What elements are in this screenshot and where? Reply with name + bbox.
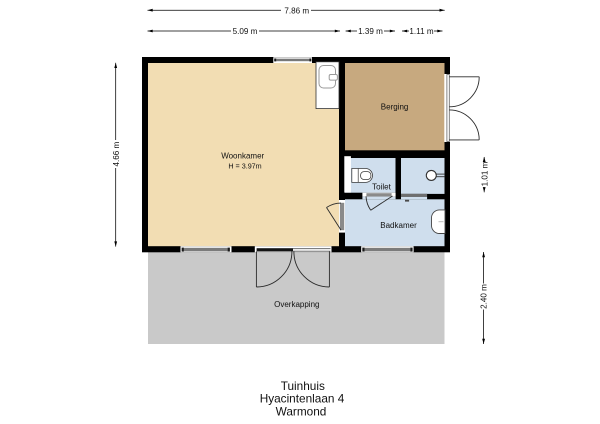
svg-text:Warmond: Warmond: [276, 404, 327, 418]
svg-text:Woonkamer: Woonkamer: [221, 151, 264, 160]
svg-text:Badkamer: Badkamer: [380, 221, 417, 230]
svg-text:1.11 m: 1.11 m: [409, 27, 433, 36]
svg-text:Toilet: Toilet: [372, 182, 391, 191]
svg-text:Berging: Berging: [381, 103, 409, 112]
svg-text:1.39 m: 1.39 m: [358, 27, 383, 36]
svg-text:1.01 m: 1.01 m: [480, 161, 489, 186]
svg-text:H = 3.97m: H = 3.97m: [228, 161, 261, 170]
svg-text:5.09 m: 5.09 m: [233, 27, 258, 36]
svg-text:4.66 m: 4.66 m: [112, 141, 121, 166]
svg-text:Overkapping: Overkapping: [274, 300, 319, 309]
svg-text:7.86 m: 7.86 m: [284, 6, 309, 15]
svg-text:2.40 m: 2.40 m: [480, 284, 489, 309]
